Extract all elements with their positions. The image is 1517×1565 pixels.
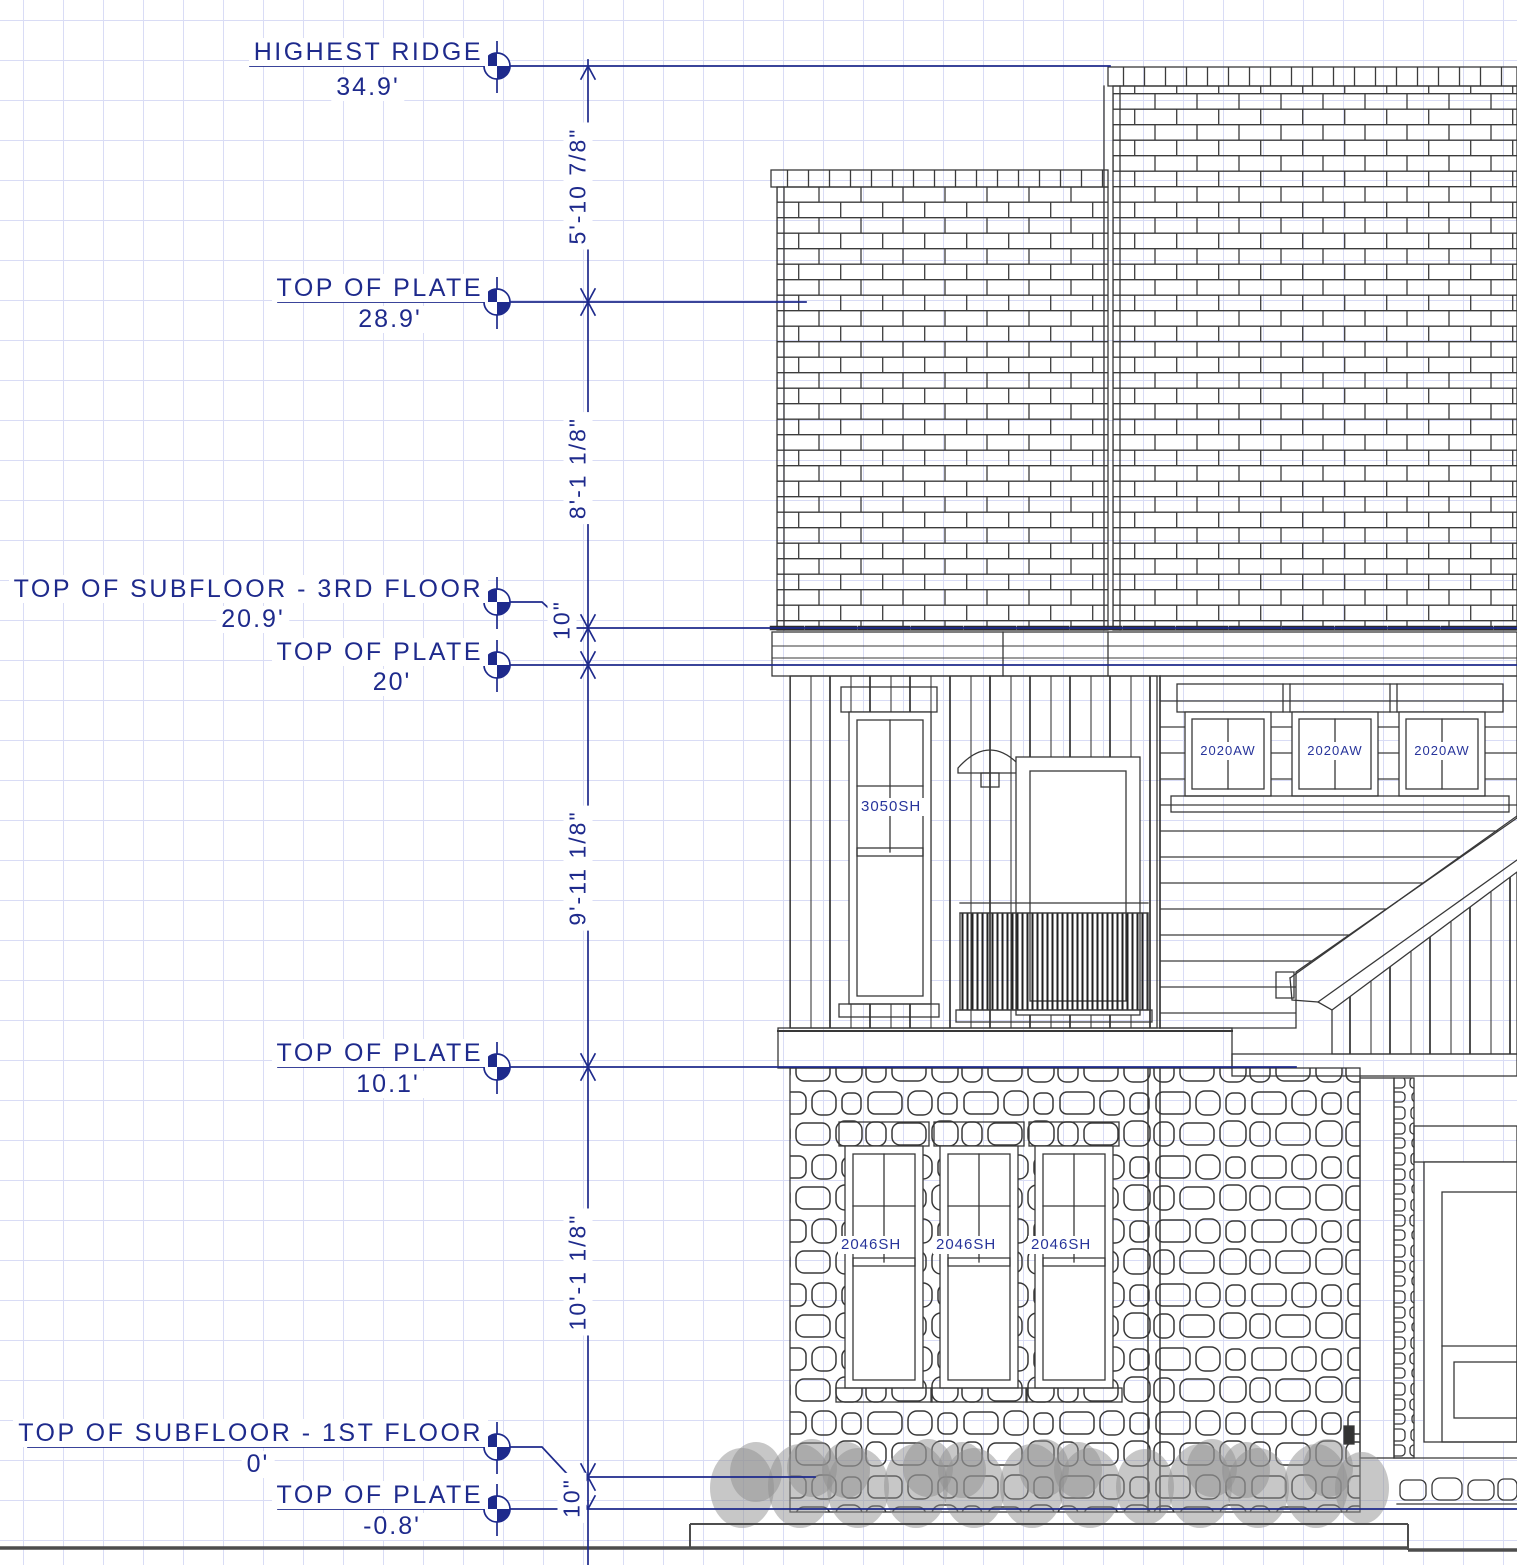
dimension-text-plate-to-subfloor[interactable]: 8'-1 1/8" xyxy=(564,412,593,524)
elevation-value-plate-1st[interactable]: 10.1' xyxy=(351,1071,424,1098)
dimension-text-2nd-floor-height[interactable]: 9'-11 1/8" xyxy=(564,805,593,930)
level-label-plate-roof[interactable]: TOP OF PLATE xyxy=(272,274,488,302)
window-label-2020aw-2[interactable]: 2020AW xyxy=(1304,742,1365,760)
elevation-value-subfloor-3rd[interactable]: 20.9' xyxy=(216,606,289,633)
elevation-canvas: HIGHEST RIDGE 34.9' TOP OF PLATE 28.9' T… xyxy=(0,0,1517,1565)
window-label-2020aw-1[interactable]: 2020AW xyxy=(1197,742,1258,760)
level-label-plate-1st[interactable]: TOP OF PLATE xyxy=(272,1039,488,1067)
window-label-2020aw-3[interactable]: 2020AW xyxy=(1411,742,1472,760)
level-label-plate-2nd[interactable]: TOP OF PLATE xyxy=(272,638,488,666)
level-label-subfloor-3rd[interactable]: TOP OF SUBFLOOR - 3RD FLOOR xyxy=(9,575,488,603)
window-label-2046sh-2[interactable]: 2046SH xyxy=(933,1236,999,1254)
elevation-value-plate-2nd[interactable]: 20' xyxy=(368,669,417,696)
datum-markers xyxy=(484,41,510,1536)
elevation-value-plate-roof[interactable]: 28.9' xyxy=(353,306,426,333)
elevation-value-highest-ridge[interactable]: 34.9' xyxy=(331,74,404,101)
dimension-text-1st-floor-height[interactable]: 10'-1 1/8" xyxy=(564,1209,593,1336)
level-label-subfloor-1st[interactable]: TOP OF SUBFLOOR - 1ST FLOOR xyxy=(13,1419,488,1447)
annotation-layer xyxy=(0,0,1517,1565)
dimension-text-ridge-to-plate[interactable]: 5'-10 7/8" xyxy=(564,123,593,250)
level-line-subfloor-1st[interactable] xyxy=(28,1447,815,1477)
window-label-2046sh-1[interactable]: 2046SH xyxy=(838,1236,904,1254)
elevation-value-plate-basement[interactable]: -0.8' xyxy=(358,1513,426,1540)
window-label-2046sh-3[interactable]: 2046SH xyxy=(1028,1236,1094,1254)
dimension-text-bottom-plate[interactable]: 10" xyxy=(558,1473,587,1523)
window-label-3050sh[interactable]: 3050SH xyxy=(858,798,924,816)
level-label-highest-ridge[interactable]: HIGHEST RIDGE xyxy=(249,38,488,66)
dimension-text-subfloor-to-plate[interactable]: 10" xyxy=(548,595,577,645)
level-label-plate-basement[interactable]: TOP OF PLATE xyxy=(272,1481,488,1509)
elevation-value-subfloor-1st[interactable]: 0' xyxy=(242,1451,275,1478)
